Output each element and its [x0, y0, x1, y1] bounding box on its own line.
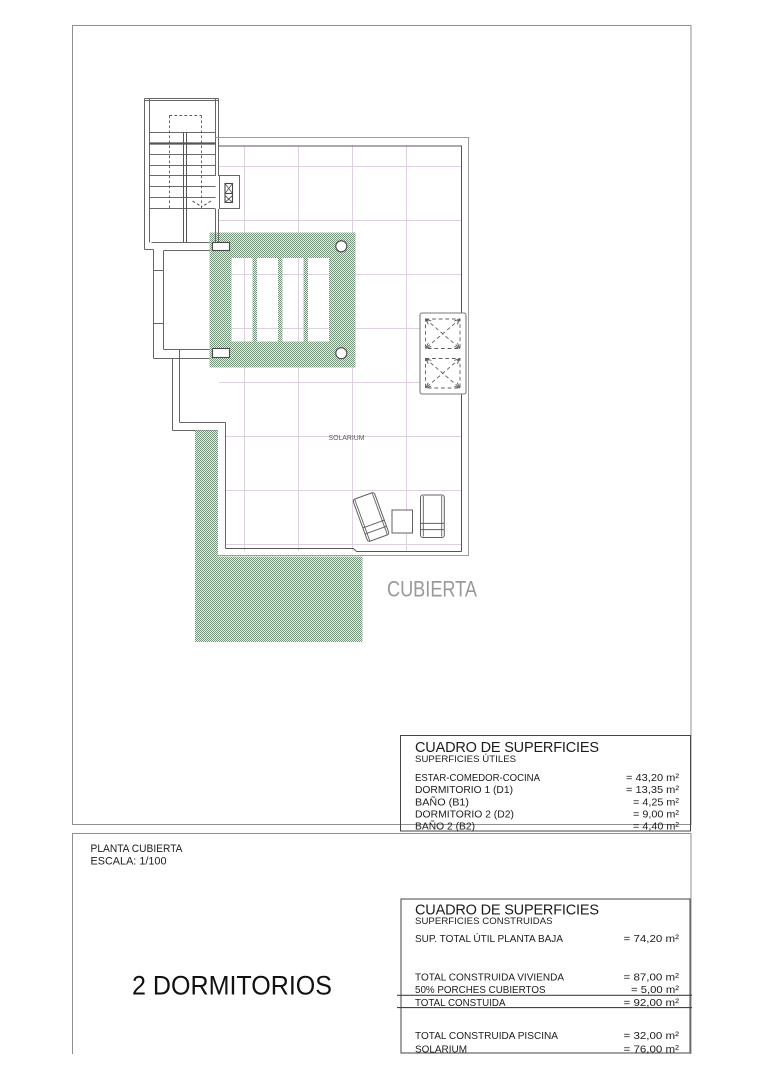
svg-text:= 9,00 m²: = 9,00 m²: [633, 809, 680, 821]
svg-text:= 13,35 m²: = 13,35 m²: [626, 784, 680, 796]
svg-text:= 76,00 m²: = 76,00 m²: [624, 1043, 680, 1055]
svg-text:= 5,00 m²: = 5,00 m²: [631, 984, 680, 996]
svg-text:BAÑO 2 (B2): BAÑO 2 (B2): [415, 819, 475, 832]
svg-text:= 43,20 m²: = 43,20 m²: [626, 772, 680, 784]
svg-text:SUPERFICIES CONSTRUIDAS: SUPERFICIES CONSTRUIDAS: [415, 916, 553, 927]
svg-text:TOTAL CONSTRUIDA VIVIENDA: TOTAL CONSTRUIDA VIVIENDA: [415, 972, 564, 984]
svg-text:= 74,20 m²: = 74,20 m²: [624, 933, 680, 945]
svg-text:PLANTA CUBIERTA: PLANTA CUBIERTA: [91, 843, 184, 855]
svg-text:TOTAL CONSTRUIDA PISCINA: TOTAL CONSTRUIDA PISCINA: [415, 1030, 558, 1042]
svg-text:TOTAL CONSTUIDA: TOTAL CONSTUIDA: [415, 997, 506, 1009]
svg-text:= 92,00 m²: = 92,00 m²: [624, 997, 680, 1009]
svg-text:ESCALA: 1/100: ESCALA: 1/100: [91, 856, 167, 868]
svg-text:CUBIERTA: CUBIERTA: [387, 577, 477, 602]
svg-text:50% PORCHES CUBIERTOS: 50% PORCHES CUBIERTOS: [415, 984, 546, 996]
svg-text:ESTAR-COMEDOR-COCINA: ESTAR-COMEDOR-COCINA: [415, 772, 540, 784]
svg-text:DORMITORIO 1 (D1): DORMITORIO 1 (D1): [415, 784, 513, 796]
svg-text:= 87,00 m²: = 87,00 m²: [624, 972, 680, 984]
svg-text:2 DORMITORIOS: 2 DORMITORIOS: [132, 971, 332, 1001]
svg-text:= 4,25 m²: = 4,25 m²: [633, 796, 680, 808]
svg-text:= 32,00 m²: = 32,00 m²: [624, 1030, 680, 1042]
svg-text:SOLARIUM: SOLARIUM: [329, 433, 365, 442]
svg-text:SUP. TOTAL ÚTIL PLANTA BAJA: SUP. TOTAL ÚTIL PLANTA BAJA: [415, 932, 563, 945]
svg-text:SOLARIUM: SOLARIUM: [415, 1043, 467, 1055]
svg-text:DORMITORIO 2 (D2): DORMITORIO 2 (D2): [415, 809, 514, 821]
svg-text:BAÑO (B1): BAÑO (B1): [415, 795, 469, 808]
svg-text:SUPERFICIES ÚTILES: SUPERFICIES ÚTILES: [415, 754, 516, 765]
svg-text:= 4,40 m²: = 4,40 m²: [633, 820, 680, 832]
